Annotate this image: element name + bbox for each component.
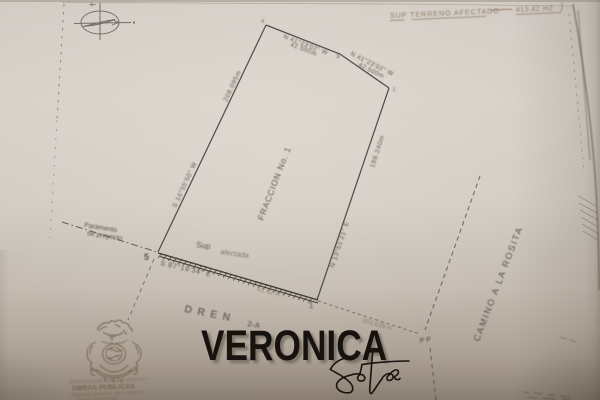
svg-text:413.42 m2: 413.42 m2: [516, 3, 554, 14]
svg-text:N 41°23'02" W: N 41°23'02" W: [282, 32, 329, 56]
svg-text:SUP TERRENO AFECTADO: SUP TERRENO AFECTADO: [390, 6, 500, 20]
svg-text:2-A: 2-A: [247, 319, 262, 330]
svg-text:CAMINO A LA ROSITA: CAMINO A LA ROSITA: [472, 225, 525, 343]
svg-text:42.500m: 42.500m: [357, 62, 385, 81]
svg-text:1: 1: [309, 301, 314, 310]
svg-text:OBRAS PUBLICAS: OBRAS PUBLICAS: [72, 383, 135, 392]
svg-text:42.500m: 42.500m: [289, 41, 318, 58]
svg-text:4: 4: [261, 19, 265, 25]
svg-text:N 41°23'02" W: N 41°23'02" W: [349, 50, 395, 78]
svg-text:S 87°19'34" E: S 87°19'34" E: [160, 259, 213, 279]
svg-text:afectada: afectada: [220, 247, 251, 260]
svg-text:61.42 m: 61.42 m: [257, 286, 281, 298]
svg-text:N 13°51'21" E: N 13°51'21" E: [328, 220, 351, 268]
svg-text:RESIDENCIA GRAL. DE CAMINOS: RESIDENCIA GRAL. DE CAMINOS: [71, 390, 143, 399]
svg-text:Sup: Sup: [196, 240, 212, 251]
svg-text:EN EL ESTADO: EN EL ESTADO: [76, 396, 119, 400]
svg-text:P P: P P: [419, 336, 431, 345]
svg-text:5: 5: [144, 252, 149, 262]
svg-text:VERONICA: VERONICA: [201, 323, 387, 370]
svg-text:SECRETARIA DE COMUNICACIONES Y: SECRETARIA DE COMUNICACIONES Y: [69, 377, 149, 386]
svg-text:de proyecto: de proyecto: [87, 230, 123, 243]
svg-text:3: 3: [336, 53, 340, 60]
svg-text:S 16°55'50" W: S 16°55'50" W: [171, 160, 199, 209]
svg-text:DREN: DREN: [183, 303, 236, 325]
svg-text:Paramento: Paramento: [84, 222, 118, 234]
svg-text:FRACCION No. 1: FRACCION No. 1: [256, 145, 293, 222]
svg-text:2: 2: [393, 87, 397, 93]
svg-text:188.240m: 188.240m: [369, 134, 386, 168]
svg-text:302.638 m: 302.638 m: [361, 317, 392, 332]
svg-text:208.095m: 208.095m: [222, 69, 243, 103]
svg-text:VERONICA: VERONICA: [204, 326, 390, 373]
